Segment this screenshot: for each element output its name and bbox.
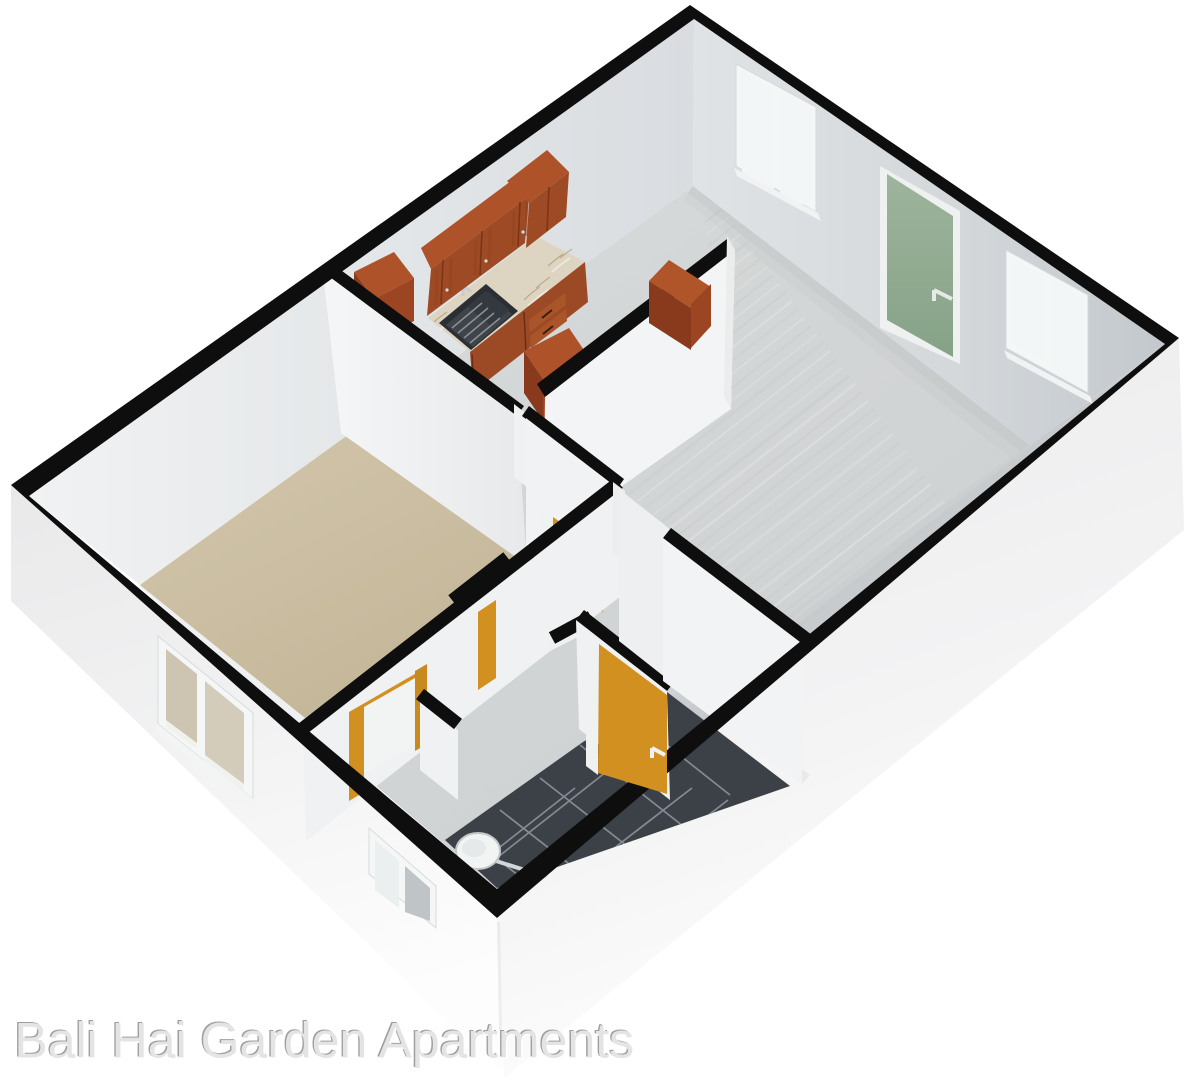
svg-text:Bali Hai Garden Apartments: Bali Hai Garden Apartments	[14, 1013, 634, 1069]
